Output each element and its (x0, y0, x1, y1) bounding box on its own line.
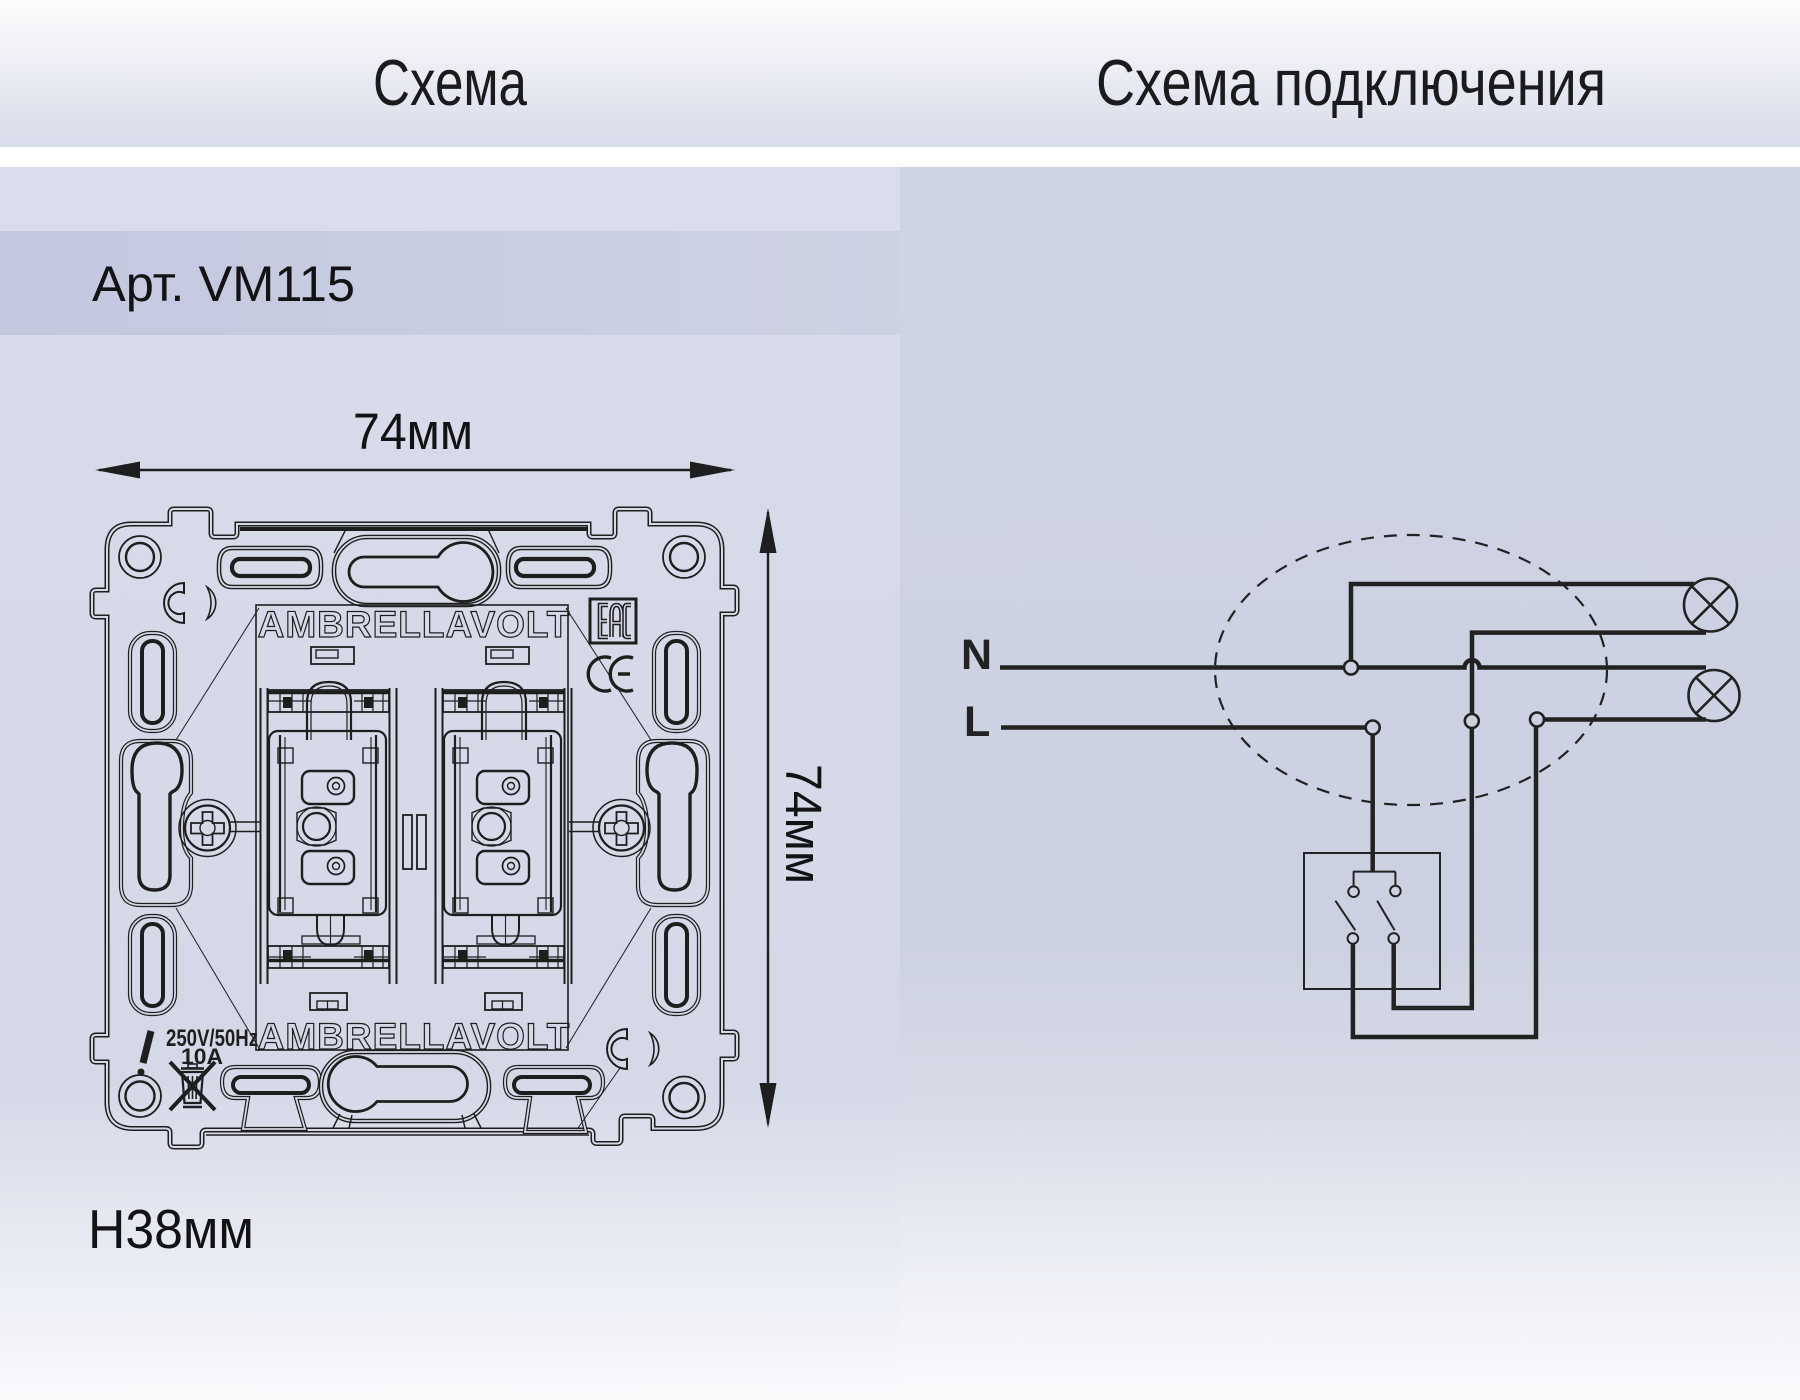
svg-text:AMBRELLAVOLT: AMBRELLAVOLT (258, 1016, 571, 1057)
svg-text:AMBRELLAVOLT: AMBRELLAVOLT (258, 604, 571, 645)
svg-text:L: L (964, 698, 990, 746)
svg-text:Схема: Схема (373, 46, 528, 119)
svg-text:H38мм: H38мм (88, 1198, 254, 1260)
svg-text:74мм: 74мм (353, 403, 473, 460)
svg-text:N: N (961, 631, 992, 679)
svg-text:Арт. VM115: Арт. VM115 (92, 256, 355, 312)
svg-text:74мм: 74мм (775, 764, 832, 884)
svg-text:Схема подключения: Схема подключения (1096, 46, 1606, 119)
